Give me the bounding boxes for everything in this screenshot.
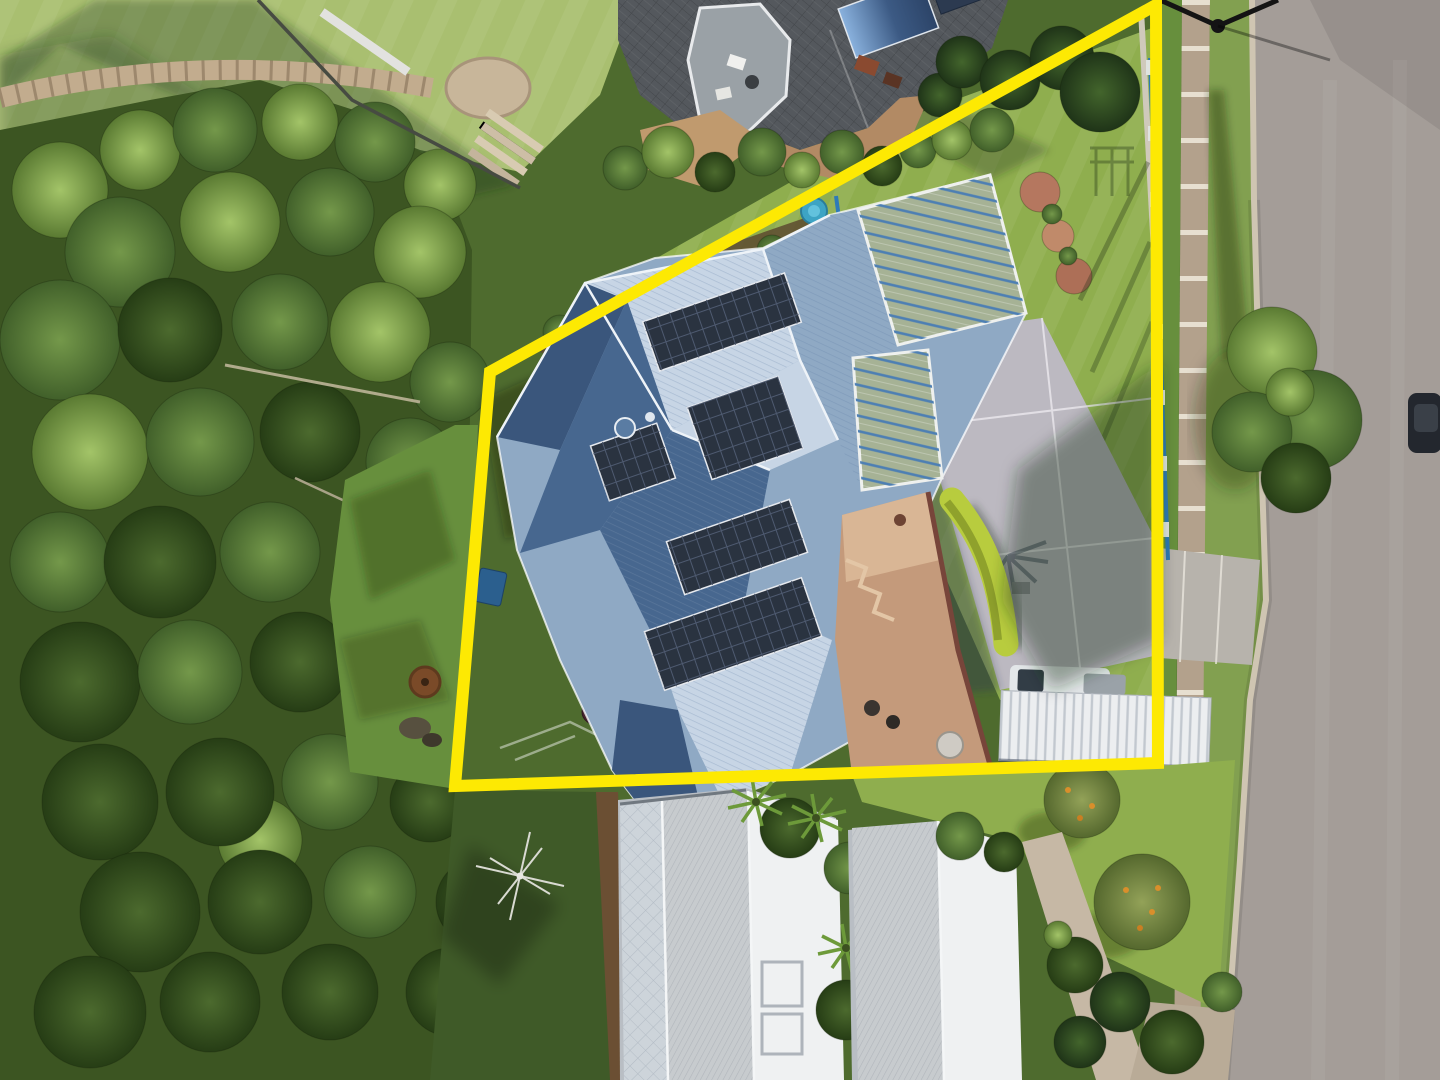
aerial-photo bbox=[0, 0, 1440, 1080]
deck-table bbox=[745, 75, 759, 89]
aerial-photo-canvas bbox=[0, 0, 1440, 1080]
carport-ribs bbox=[999, 691, 1211, 768]
car-roof bbox=[1414, 404, 1438, 432]
corrugation bbox=[852, 821, 944, 1080]
planter-pot bbox=[886, 715, 900, 729]
paver-circle-patio bbox=[446, 58, 530, 118]
trellis-shadow bbox=[1090, 148, 1134, 196]
planter-pot bbox=[864, 700, 880, 716]
vehicle-tray bbox=[1083, 673, 1126, 694]
table-center bbox=[421, 678, 429, 686]
driveway-crossover bbox=[1160, 548, 1260, 665]
planter-pot bbox=[894, 514, 906, 526]
satellite-dish bbox=[615, 418, 635, 438]
diamond-texture bbox=[620, 801, 668, 1080]
round-planter-white bbox=[937, 732, 963, 758]
duplex-b bbox=[848, 812, 1024, 1080]
green-roof-battens bbox=[853, 350, 942, 490]
kiddie-pool-water bbox=[808, 205, 820, 217]
corrugation bbox=[662, 791, 754, 1080]
roof-vent bbox=[645, 412, 655, 422]
rock bbox=[422, 733, 442, 747]
vehicle-windshield bbox=[1017, 669, 1044, 692]
